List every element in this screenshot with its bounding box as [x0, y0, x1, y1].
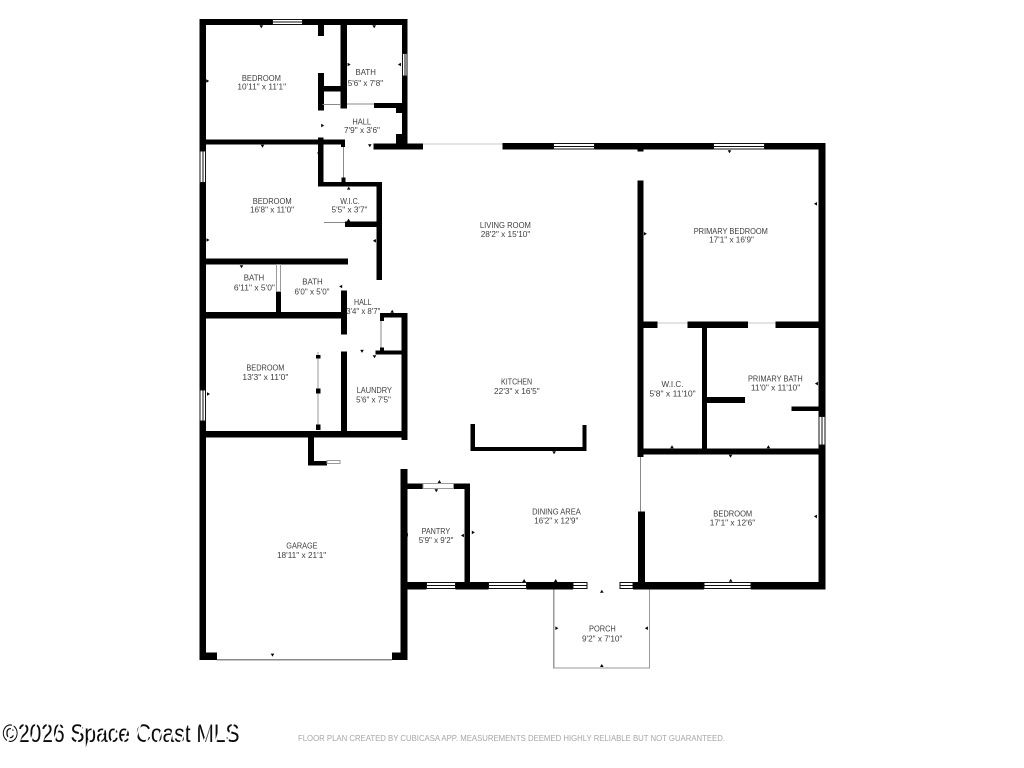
svg-text:9'2" x 7'10": 9'2" x 7'10": [582, 633, 622, 643]
svg-text:16'8" x 11'0": 16'8" x 11'0": [250, 204, 294, 214]
svg-text:FLOOR PLAN CREATED BY CUBICASA: FLOOR PLAN CREATED BY CUBICASA APP. MEAS…: [298, 734, 725, 743]
svg-text:17'1" x 16'9": 17'1" x 16'9": [709, 234, 754, 244]
svg-text:BATH: BATH: [302, 277, 323, 287]
svg-text:13'3" x 11'0": 13'3" x 11'0": [242, 372, 288, 382]
svg-text:BATH: BATH: [356, 67, 376, 77]
svg-text:5'8" x 11'10": 5'8" x 11'10": [649, 388, 695, 398]
svg-text:7'9" x 3'6": 7'9" x 3'6": [344, 125, 380, 135]
svg-text:6'11" x 5'0": 6'11" x 5'0": [234, 283, 275, 293]
svg-text:22'3" x 16'5": 22'3" x 16'5": [494, 386, 540, 396]
svg-text:5'6" x 7'8": 5'6" x 7'8": [348, 78, 383, 88]
svg-text:11'0" x 11'10": 11'0" x 11'10": [751, 383, 800, 393]
svg-text:3'4" x 8'7": 3'4" x 8'7": [346, 306, 380, 316]
svg-text:10'11" x 11'1": 10'11" x 11'1": [237, 82, 286, 92]
svg-text:BATH: BATH: [244, 273, 265, 283]
svg-text:18'11" x 21'1": 18'11" x 21'1": [277, 550, 326, 560]
svg-text:17'1" x 12'6": 17'1" x 12'6": [710, 518, 755, 528]
svg-text:5'5" x 3'7": 5'5" x 3'7": [332, 204, 368, 214]
svg-text:5'9" x 9'2": 5'9" x 9'2": [419, 535, 454, 545]
svg-text:KITCHEN: KITCHEN: [501, 376, 532, 386]
svg-text:28'2" x 15'10": 28'2" x 15'10": [481, 229, 531, 239]
svg-text:6'0" x 5'0": 6'0" x 5'0": [294, 286, 329, 296]
svg-text:16'2" x 12'9": 16'2" x 12'9": [534, 516, 578, 526]
svg-text:5'6" x 7'5": 5'6" x 7'5": [356, 395, 391, 405]
svg-text:PORCH: PORCH: [589, 624, 616, 634]
